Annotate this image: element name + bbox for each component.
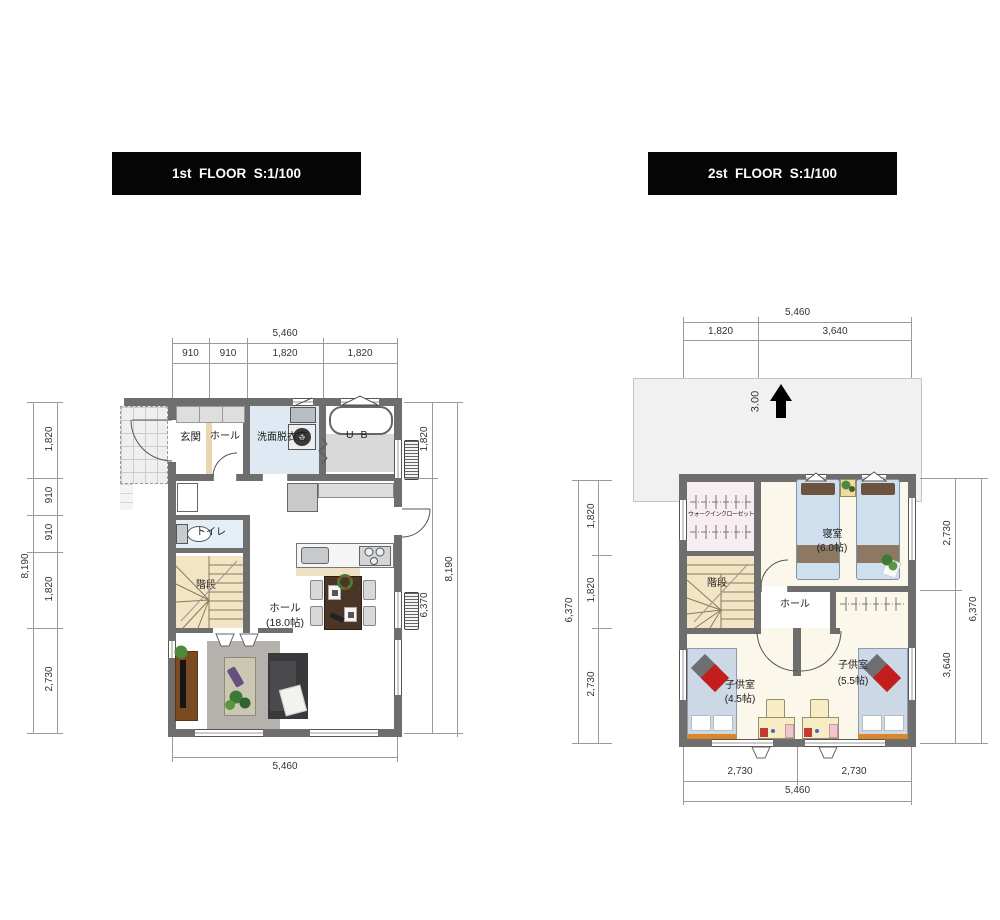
room-label-stairs1: 階段 <box>196 580 216 592</box>
tv <box>180 660 186 708</box>
window <box>908 498 916 560</box>
dim-tick <box>572 480 612 481</box>
dim-text: 1,820 <box>420 419 430 459</box>
wall <box>319 406 326 474</box>
floor2-title-text: 2st FLOOR S:1/100 <box>708 166 837 181</box>
dining-chair <box>310 580 323 600</box>
window <box>679 650 687 700</box>
dim-tick <box>27 402 63 403</box>
dim-tick <box>404 733 463 734</box>
shoe-cabinet-row <box>176 406 245 423</box>
dim-text: 2,730 <box>45 659 55 699</box>
dim-text: 910 <box>172 349 209 359</box>
door-opening <box>761 586 788 592</box>
room-label-hall2: ホール <box>770 599 820 611</box>
dim-line <box>33 402 34 733</box>
room-label-wic: ウォークインクローゼット <box>687 512 755 519</box>
dim-text: 1,820 <box>323 349 397 359</box>
dim-text: 3,640 <box>758 327 912 337</box>
book <box>785 724 794 738</box>
room-label-bath: U B <box>346 429 370 442</box>
dim-text: 8,190 <box>445 549 455 589</box>
pillow <box>884 715 904 731</box>
dim-text: 1,820 <box>45 419 55 459</box>
wall <box>168 628 213 633</box>
dim-ext <box>172 338 173 398</box>
room-label-stairs2: 階段 <box>707 578 727 590</box>
dim-line <box>432 402 433 733</box>
room-label-bedroom: 寝室 <box>810 529 855 541</box>
dim-line <box>598 480 599 743</box>
dim-text: 6,370 <box>420 585 430 625</box>
dim-tick <box>572 743 612 744</box>
bed-frame <box>687 734 737 739</box>
back-door-arc <box>402 509 430 537</box>
door-opening <box>213 474 237 481</box>
window <box>341 398 379 406</box>
wall <box>168 548 250 553</box>
window <box>195 729 263 737</box>
door-opening <box>262 474 288 481</box>
dim-text: 1,820 <box>247 349 323 359</box>
stove <box>359 546 391 566</box>
window <box>908 648 916 700</box>
place-mat <box>344 607 357 622</box>
dim-text: 8,190 <box>21 546 31 586</box>
roof-pitch-label: 3.00 <box>751 382 762 422</box>
window <box>293 398 313 406</box>
room-label-toilet: トイレ <box>196 527 226 539</box>
dim-text: 2,730 <box>683 767 797 777</box>
book <box>760 728 768 737</box>
stairs2-floor <box>687 556 754 628</box>
plate <box>348 612 354 618</box>
pillow <box>801 483 835 495</box>
dim-ext <box>397 338 398 398</box>
dim-line <box>578 480 579 743</box>
wall <box>679 628 761 634</box>
dim-tick <box>404 402 463 403</box>
dim-tick <box>592 628 612 629</box>
dim-line <box>457 402 458 737</box>
dim-tick <box>592 555 612 556</box>
dim-line <box>172 343 398 344</box>
back-door-opening <box>394 507 402 535</box>
dim-text: 6,370 <box>565 590 575 630</box>
porch-step <box>120 484 133 510</box>
room-label-kids1-size: (4.5帖) <box>712 694 768 706</box>
dim-text: 3,640 <box>943 645 953 685</box>
dim-ext <box>797 747 798 785</box>
dim-text: 2,730 <box>587 664 597 704</box>
wall <box>679 551 761 556</box>
floor1-title-text: 1st FLOOR S:1/100 <box>172 166 301 181</box>
dim-text: 5,460 <box>683 308 912 318</box>
entrance-door-opening <box>168 420 176 462</box>
desk-item <box>815 729 819 733</box>
nightstand <box>840 479 856 497</box>
floor1-title: 1st FLOOR S:1/100 <box>112 152 361 195</box>
dim-ext <box>397 737 398 762</box>
dim-ext <box>247 338 248 398</box>
dim-text: 5,460 <box>172 329 398 339</box>
shutter-box <box>404 592 419 630</box>
window <box>394 592 402 628</box>
plate <box>332 590 338 596</box>
room-label-entrance: 玄関 <box>180 431 201 444</box>
dim-tick <box>27 733 63 734</box>
stairs-floor <box>176 556 243 628</box>
book <box>804 728 812 737</box>
window <box>805 739 885 747</box>
dim-line <box>683 801 912 802</box>
window <box>679 500 687 540</box>
dim-line <box>57 402 58 733</box>
dim-text: 910 <box>45 512 55 552</box>
dim-tick <box>920 590 962 591</box>
window <box>310 729 378 737</box>
wall <box>830 586 836 630</box>
bed-frame <box>858 734 908 739</box>
wall <box>754 474 761 555</box>
dim-text: 2,730 <box>797 767 911 777</box>
counter-ledge <box>296 568 360 576</box>
dim-line <box>683 322 912 323</box>
shutter-box <box>404 440 419 480</box>
dim-ext <box>911 747 912 805</box>
dim-line <box>683 340 912 341</box>
dim-tick <box>920 478 988 479</box>
room-label-living: ホール <box>255 602 315 615</box>
dim-text: 1,820 <box>587 570 597 610</box>
dim-ext <box>172 737 173 762</box>
dim-text: 1,820 <box>683 327 758 337</box>
room-label-kids1: 子供室 <box>712 680 768 692</box>
tv-board <box>175 651 198 721</box>
kitchen-cupboard <box>318 483 394 498</box>
wall <box>793 628 801 676</box>
room-label-entrance-hall: ホール <box>210 431 240 443</box>
vanity <box>290 407 316 423</box>
window <box>712 739 773 747</box>
dim-text: 5,460 <box>172 762 398 772</box>
room-label-kids2-size: (5.5帖) <box>825 676 881 688</box>
dim-line <box>172 363 398 364</box>
dim-text: 1,820 <box>45 569 55 609</box>
floorplan-canvas: 1st FLOOR S:1/100 2st FLOOR S:1/100 <box>0 0 1000 920</box>
book <box>829 724 838 738</box>
room-label-kids2: 子供室 <box>825 660 881 672</box>
desk-item <box>771 729 775 733</box>
pillow <box>691 715 711 731</box>
window <box>394 440 402 478</box>
room-label-living-size: (18.0帖) <box>251 617 319 630</box>
dim-tick <box>920 743 988 744</box>
cabinet <box>177 483 198 512</box>
dim-text: 6,370 <box>969 589 979 629</box>
entrance-porch <box>120 406 168 484</box>
kitchen-sink <box>301 547 329 564</box>
pillow <box>861 483 895 495</box>
dim-tick <box>27 552 63 553</box>
dim-text: 910 <box>45 475 55 515</box>
room-label-bedroom-size: (6.0帖) <box>806 543 858 555</box>
wall <box>243 515 250 633</box>
coffee-table <box>224 657 256 716</box>
dim-ext <box>209 338 210 398</box>
refrigerator <box>287 483 318 512</box>
wall <box>754 555 761 634</box>
place-mat <box>328 585 341 600</box>
window <box>394 640 402 695</box>
room-label-washroom: 洗面脱衣室 <box>257 432 307 444</box>
dining-chair <box>363 580 376 600</box>
dim-text: 910 <box>209 349 247 359</box>
floor2-title: 2st FLOOR S:1/100 <box>648 152 897 195</box>
dim-line <box>981 478 982 743</box>
pillow <box>713 715 733 731</box>
dining-chair <box>363 606 376 626</box>
dim-text: 2,730 <box>943 513 953 553</box>
dim-line <box>172 757 398 758</box>
dim-line <box>955 478 956 743</box>
desk-chair <box>810 699 829 719</box>
desk-chair <box>766 699 785 719</box>
window-mark <box>819 747 837 758</box>
pillow <box>862 715 882 731</box>
window-mark <box>752 747 770 758</box>
dim-tick <box>404 478 438 479</box>
dim-tick <box>27 628 63 629</box>
dim-text: 5,460 <box>683 786 912 796</box>
dim-ext <box>323 338 324 398</box>
dim-text: 1,820 <box>587 496 597 536</box>
